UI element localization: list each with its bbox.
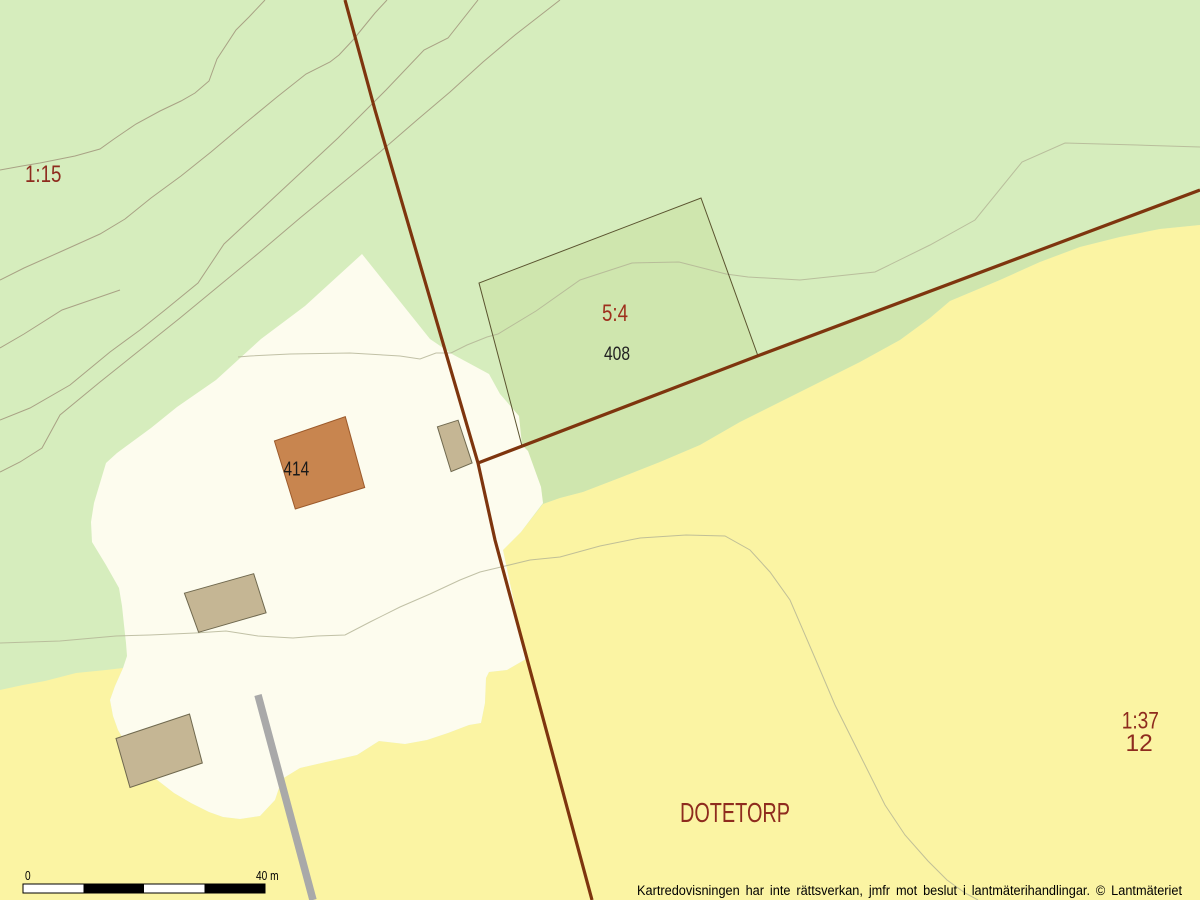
svg-text:1:15: 1:15: [25, 161, 61, 188]
svg-text:Kartredovisningen har inte rät: Kartredovisningen har inte rättsverkan, …: [637, 883, 1182, 898]
svg-text:408: 408: [604, 342, 630, 364]
svg-text:414: 414: [284, 458, 310, 480]
svg-text:DOTETORP: DOTETORP: [680, 798, 790, 829]
svg-text:12: 12: [1126, 730, 1153, 757]
svg-text:0: 0: [25, 869, 31, 883]
svg-text:40 m: 40 m: [256, 869, 279, 883]
svg-text:5:4: 5:4: [602, 300, 628, 327]
